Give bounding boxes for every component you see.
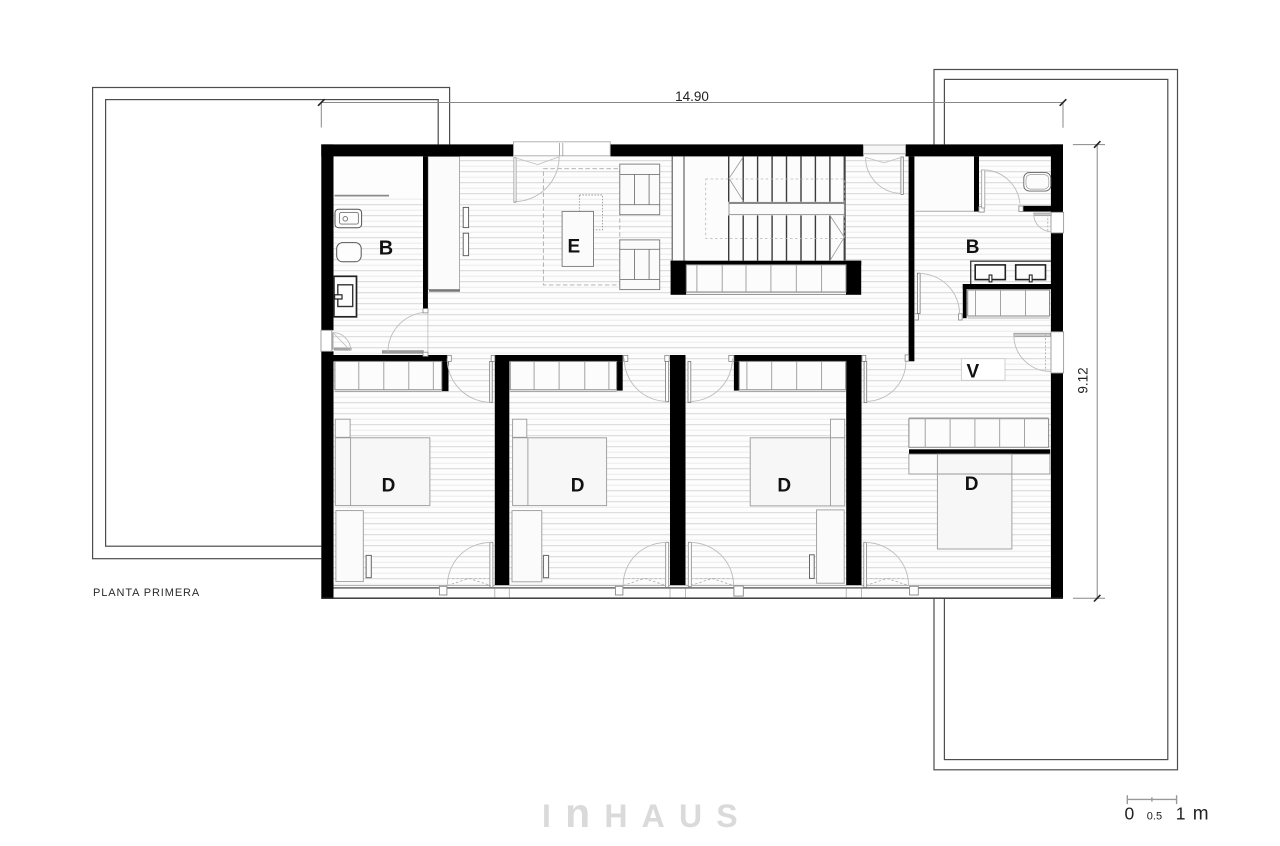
svg-text:14.90: 14.90 bbox=[675, 89, 709, 104]
svg-text:B: B bbox=[379, 237, 393, 259]
svg-text:1: 1 bbox=[1176, 804, 1186, 824]
svg-text:D: D bbox=[382, 475, 396, 496]
svg-text:0.5: 0.5 bbox=[1147, 810, 1162, 822]
svg-text:0: 0 bbox=[1125, 804, 1135, 824]
svg-text:PLANTA PRIMERA: PLANTA PRIMERA bbox=[93, 587, 200, 599]
svg-text:D: D bbox=[571, 476, 585, 497]
svg-text:E: E bbox=[568, 236, 581, 257]
svg-text:9.12: 9.12 bbox=[1076, 367, 1091, 393]
svg-text:V: V bbox=[967, 361, 980, 382]
svg-text:D: D bbox=[777, 476, 791, 497]
svg-text:B: B bbox=[966, 237, 980, 258]
svg-text:InHAUS: InHAUS bbox=[542, 790, 752, 836]
svg-text:m: m bbox=[1193, 803, 1209, 824]
svg-text:D: D bbox=[965, 474, 979, 495]
